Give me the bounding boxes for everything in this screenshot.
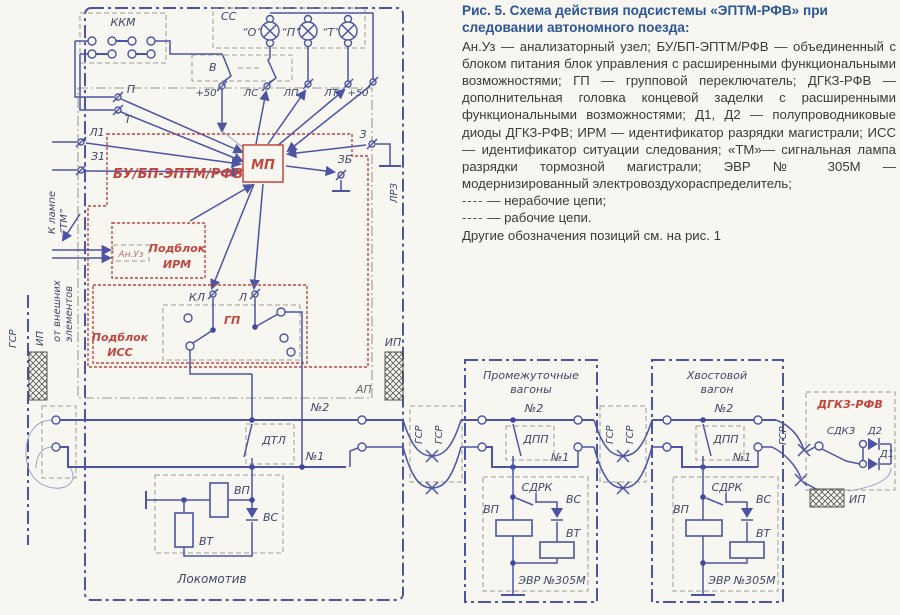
mp-label: МП [251,158,275,173]
iss-podblok-label: Подблок [92,331,149,344]
to-lamp-label: К лампе [47,191,58,234]
figure-caption: Рис. 5. Схема действия подсистемы «ЭПТМ-… [462,2,896,244]
d1-label: Д1 [879,449,894,460]
figure-title: Рис. 5. Схема действия подсистемы «ЭПТМ-… [462,2,896,37]
vs-label-car1: ВС [566,493,582,506]
zb-label: ЗБ [338,153,353,166]
mp-block: МП [190,86,370,288]
z-label: З [359,128,366,141]
z1-label: З1 [91,150,105,163]
intermediate-title-1: Промежуточные [483,369,579,382]
vt-coil-car2 [730,542,764,558]
vs-label-loco: ВС [263,511,279,524]
intermediate-cars: Промежуточные вагоны №2 №1 ДПП СДРК ВС В… [465,360,597,602]
vp-coil-loco [210,483,228,517]
irm-label: ИРМ [163,258,191,271]
external-elements-label-2: элементов [64,286,75,342]
external-elements-label-1: от внешних [52,280,63,342]
anuz-label: Ан.Уз [117,250,143,260]
legend-nonworking-label: — нерабочие цепи; [487,193,606,208]
sdrk-block-car2: СДРК ВС ВП ВТ ЭВР №305М [673,467,778,595]
gp-label: ГП [224,314,240,327]
hose-coupling-2: ГСР ГСР [582,406,663,494]
vt-coil-loco [175,513,193,547]
n2-label-car2: №2 [714,402,733,415]
vp-label-car2: ВП [673,503,689,516]
vt-label-loco: ВТ [199,535,215,548]
plus50-left-label: +50 [195,88,216,99]
gsr-label-h1a: ГСР [414,424,425,444]
signal-lamp-box: СС “О” “П” “Т” [213,8,373,81]
figure-footnote: Другие обозначения позиций см. на рис. 1 [462,227,896,244]
iss-label: ИСС [107,346,132,359]
d2-label: Д2 [867,426,882,437]
legend-nonworking-row: ---- — нерабочие цепи; [462,192,896,209]
intermediate-title-2: вагоны [510,383,552,396]
lp-label: ЛП [282,88,299,99]
irm-podblok-label: Подблок [149,242,206,255]
vt-label-car1: ВТ [566,527,582,540]
gsr-label-end: ГСР [778,425,789,445]
ip-label-front: ИП [35,331,46,346]
gsr-label-h2a: ГСР [605,424,616,444]
kkm-label: ККМ [110,16,136,29]
ss-label: СС [221,10,237,23]
lrz-label: ЛРЗ [389,182,400,204]
vs-label-car2: ВС [756,493,772,506]
lamp-t [339,16,357,47]
dgkz-rfv: ГСР ДГКЗ-РФВ СДКЗ Д2 Д1 ИП [762,392,895,507]
lokomotiv-label: Локомотив [176,572,246,586]
hose-coupling-1: ГСР ГСР [366,406,478,494]
lamp-p-label: “П” [281,26,301,39]
n1-label-loco: №1 [305,450,324,463]
tm-lamp-label: “ТМ” [59,208,70,234]
ip-connector-loco [385,352,403,400]
lamp-t-label: “Т” [322,26,340,39]
gsr-label-h1b: ГСР [434,424,445,444]
sdrk-label-car2: СДРК [712,481,744,494]
n1-label-car2: №1 [732,451,751,464]
ip-connector-end [810,489,844,507]
legend-nonworking-sample: ---- [462,193,484,208]
sdrk-block-car1: СДРК ВС ВП ВТ ЭВР №305М [483,467,588,595]
legend-working-row: ---- — рабочие цепи. [462,209,896,226]
lamp-o-label: “О” [242,26,262,39]
vp-label-car1: ВП [483,503,499,516]
evr-label-car1: ЭВР №305М [517,574,586,587]
podblok-irm: Подблок ИРМ Ан.Уз [52,223,206,278]
gsr-label-h2b: ГСР [625,424,636,444]
legend-working-sample: ---- [462,210,484,225]
p-label: П [127,83,135,96]
evr-label-car2: ЭВР №305М [707,574,776,587]
vp-coil-car2 [686,520,722,536]
dgkz-label: ДГКЗ-РФВ [816,398,883,411]
n2-label-car1: №2 [524,402,543,415]
ip-label-loco: ИП [385,336,402,349]
kl-label: КЛ [189,291,205,304]
dpp-label-car1: ДПП [522,433,548,446]
gsr-label-front: ГСР [8,328,19,348]
ip-label-end: ИП [849,493,866,506]
lamp-o [261,16,279,47]
vt-label-car2: ВТ [756,527,772,540]
l1-label: Л1 [88,126,104,139]
v-switch: В [192,54,292,83]
tail-title-1: Хвостовой [686,369,747,382]
dpp-label-car2: ДПП [712,433,738,446]
page: { "figure": { "title": "Рис. 5. Схема де… [0,0,900,615]
dtl-label: ДТЛ [261,434,286,447]
legend-working-label: — рабочие цепи. [487,210,591,225]
vp-coil-car1 [496,520,532,536]
loco-valve-block: ВП ВС ВТ Локомотив [146,467,283,586]
kkm-block: ККМ [75,13,222,63]
ip-connector-front [29,352,47,400]
bu-bp-label: БУ/БП-ЭПТМ/РФВ [113,167,243,182]
sdrk-label-car1: СДРК [522,481,554,494]
lamp-p [299,16,317,47]
vt-coil-car1 [540,542,574,558]
train-wires: №2 №1 ДТЛ [60,374,366,470]
v-switch-label: В [209,61,217,74]
tail-title-2: вагон [701,383,734,396]
front-coupling: ГСР ИП от внешних элементов [8,280,76,545]
ap-label: АП [355,383,372,396]
n1-label-car1: №1 [550,451,569,464]
ls-label: ЛС [243,88,259,99]
figure-legend-text: Ан.Уз — анализаторный узел; БУ/БП-ЭПТМ/Р… [462,38,896,192]
vp-label-loco: ВП [234,484,250,497]
l-label: Л [238,291,247,304]
tail-car: Хвостовой вагон №2 №1 ДПП СДРК ВС ВП [652,360,783,602]
n2-label-loco: №2 [310,401,329,414]
sdkz-label: СДКЗ [827,426,856,437]
